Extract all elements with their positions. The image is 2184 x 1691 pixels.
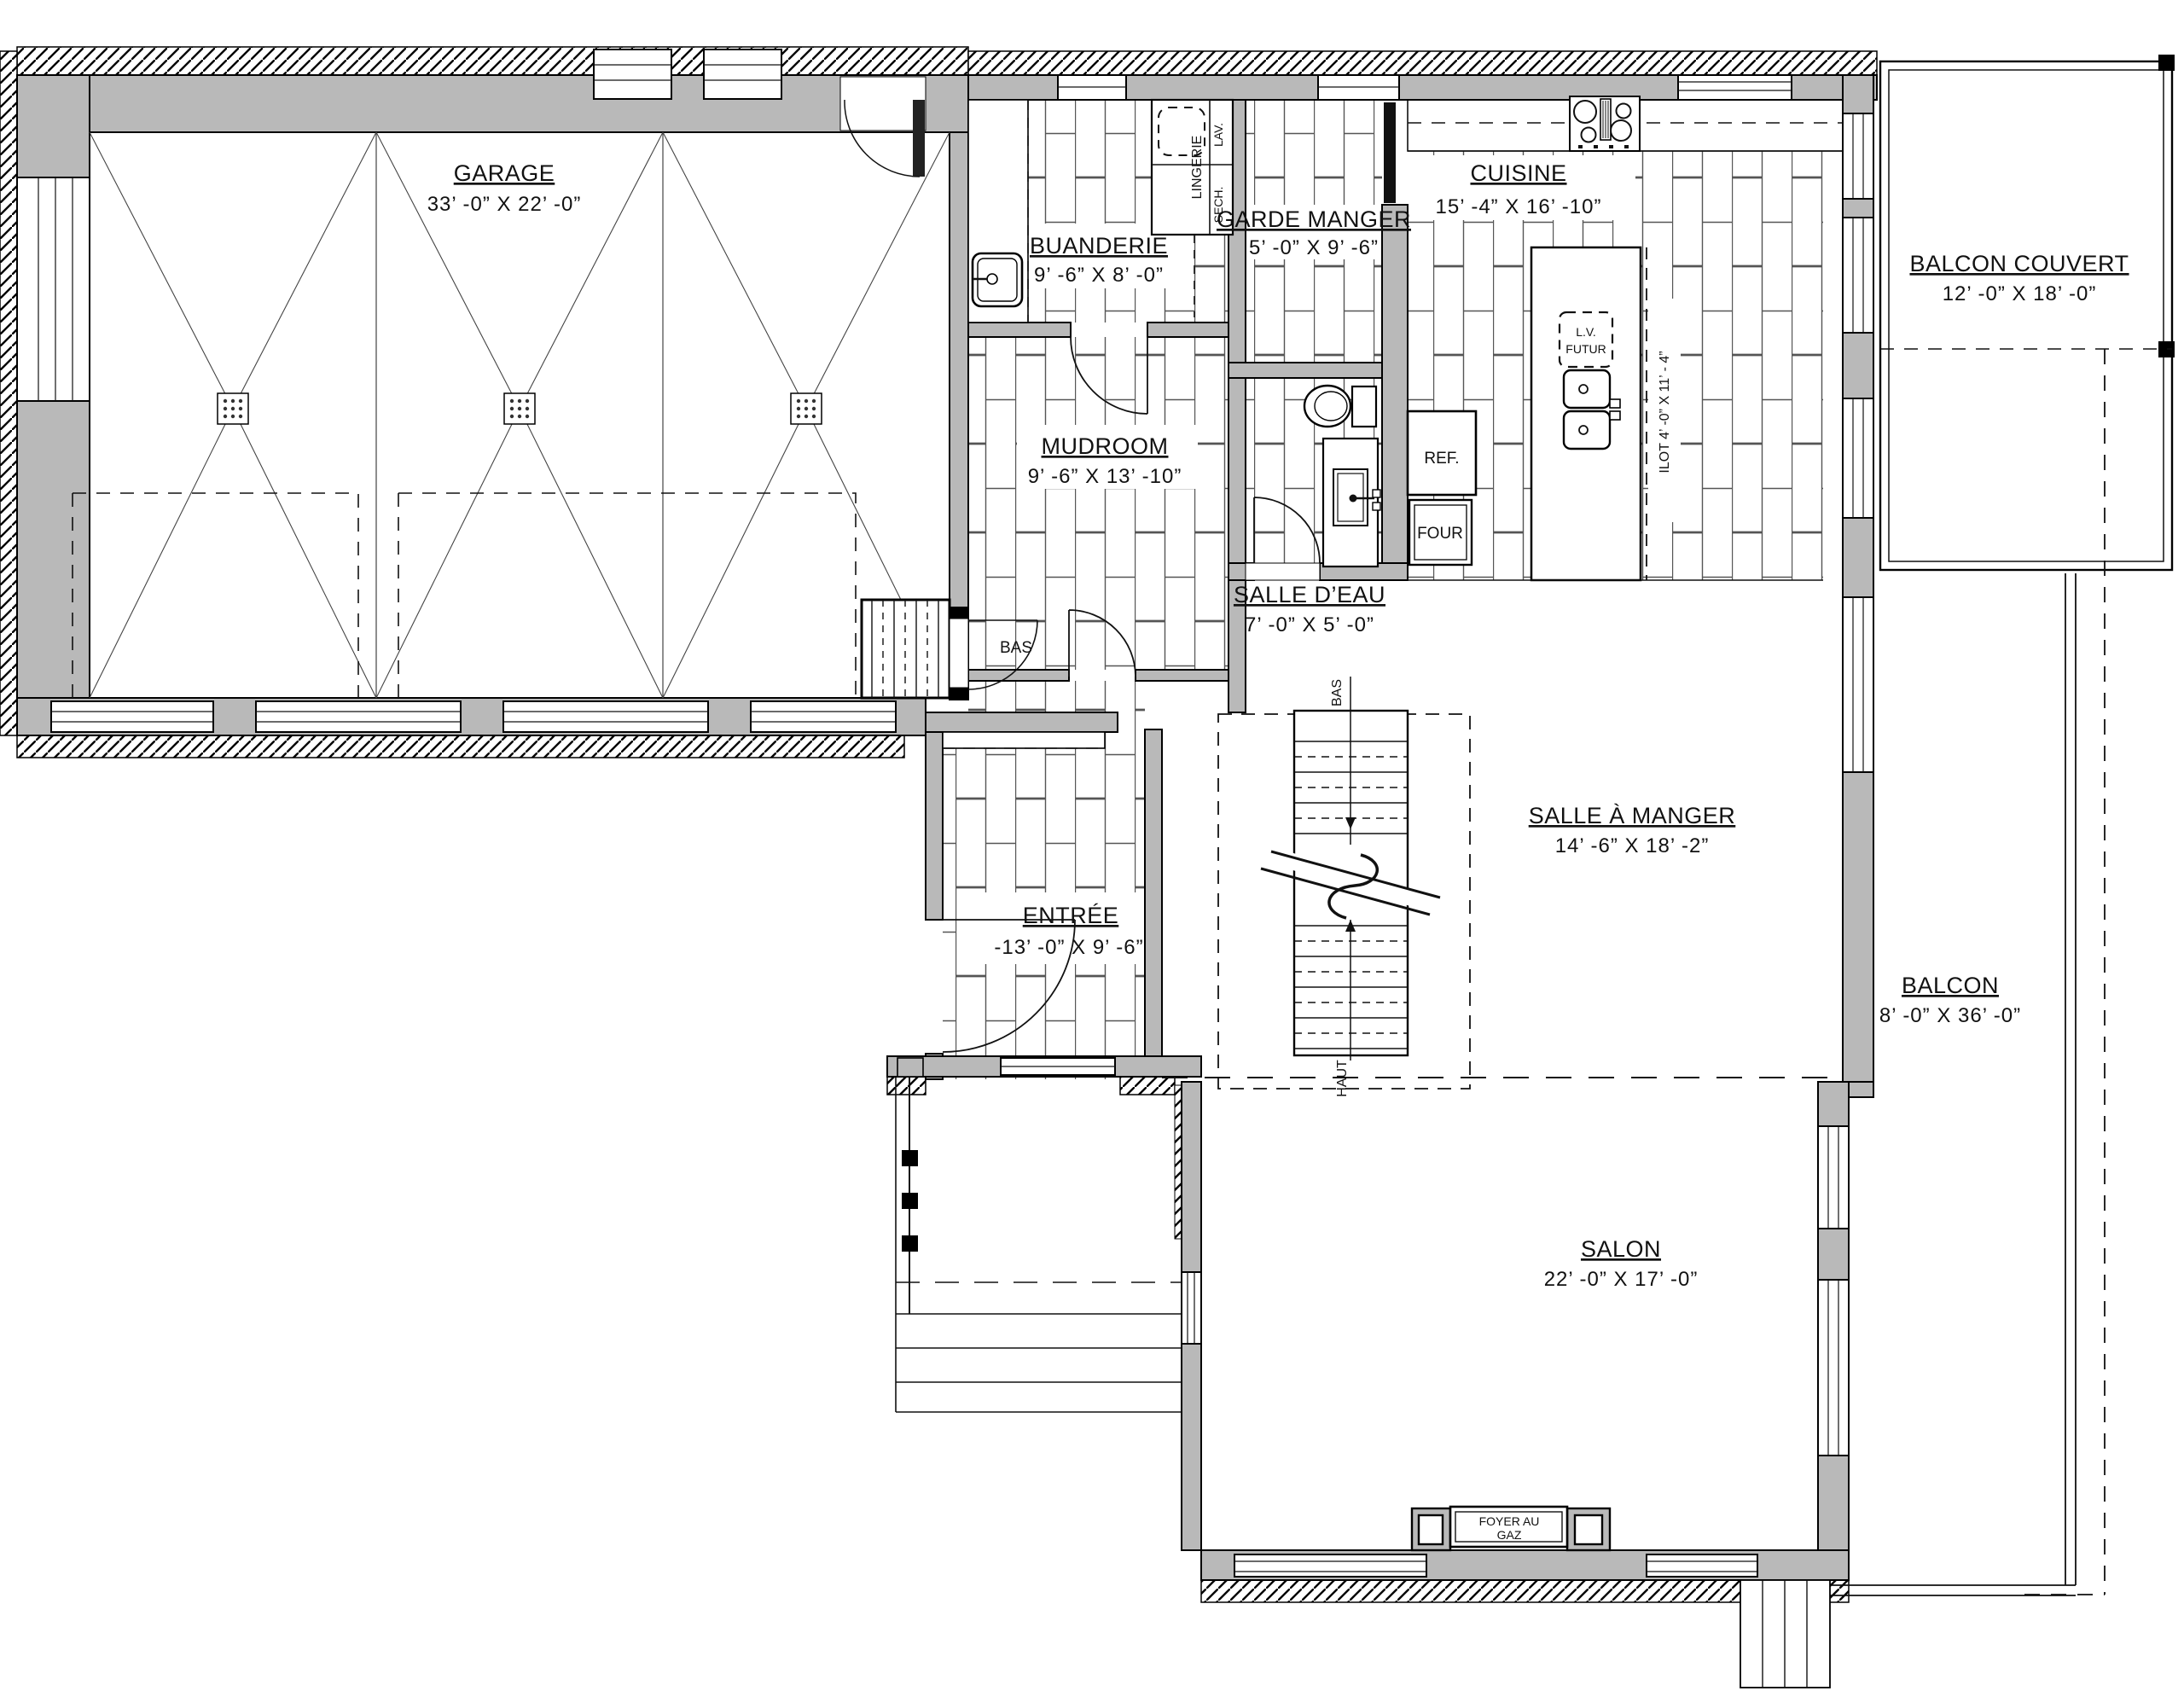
room-label-balcon-couvert: BALCON COUVERT — [1909, 251, 2129, 276]
room-label-garage: GARAGE — [454, 160, 555, 186]
label-foyer-line2: GAZ — [1497, 1528, 1522, 1542]
balcon-steps — [1740, 1580, 1830, 1688]
buanderie-window — [1058, 75, 1126, 100]
room-dims-salle-a-manger: 14’ -6” X 18’ -2” — [1555, 834, 1710, 857]
laundry-sink — [973, 253, 1022, 306]
room-label-buanderie: BUANDERIE — [1030, 233, 1168, 259]
room-label-garde-manger: GARDE MANGER — [1217, 206, 1411, 232]
room-dims-cuisine: 15’ -4” X 16’ -10” — [1436, 195, 1602, 218]
label-bas: BAS — [1330, 679, 1345, 706]
salon-west-window — [1182, 1272, 1201, 1344]
label-lv-futur: FUTUR — [1565, 342, 1606, 356]
garage-west-window — [17, 177, 90, 401]
room-label-balcon: BALCON — [1902, 973, 1999, 998]
label-bas-garage: BAS — [1000, 639, 1032, 657]
room-label-salon: SALON — [1581, 1236, 1661, 1262]
room-label-salle-a-manger: SALLE À MANGER — [1529, 803, 1736, 828]
room-dims-entree: -13’ -0” X 9’ -6” — [994, 936, 1143, 959]
room-dims-mudroom: 9’ -6” X 13’ -10” — [1028, 465, 1182, 488]
cooktop — [1570, 96, 1640, 151]
room-dims-garde-manger: 5’ -0” X 9’ -6” — [1249, 236, 1379, 259]
toilet — [1304, 386, 1376, 427]
label-lingerie: LINGERIE — [1190, 136, 1205, 200]
room-label-cuisine: CUISINE — [1470, 160, 1566, 186]
salon-east-windows — [1818, 1126, 1849, 1456]
kitchen-north-window — [1678, 75, 1792, 100]
room-dims-salle-deau: 7’ -0” X 5’ -0” — [1245, 613, 1374, 636]
garde-manger-window — [1318, 75, 1399, 100]
floor-plan: GARAGE 33’ -0” X 22’ -0” BUANDERIE 9’ -6… — [0, 0, 2184, 1691]
balcon-couvert-structure — [1880, 55, 2175, 570]
room-label-entree: ENTRÉE — [1023, 903, 1119, 928]
label-four: FOUR — [1417, 525, 1463, 543]
entree-closet — [943, 732, 1105, 748]
room-dims-buanderie: 9’ -6” X 8’ -0” — [1034, 264, 1164, 287]
room-label-mudroom: MUDROOM — [1042, 433, 1169, 459]
vanity — [1323, 439, 1380, 567]
room-dims-balcon-couvert: 12’ -0” X 18’ -0” — [1943, 282, 2097, 305]
porch-sidelight — [1001, 1058, 1115, 1075]
room-label-salle-deau: SALLE D’EAU — [1234, 582, 1385, 607]
label-sech: SECH. — [1211, 187, 1225, 224]
label-haut: HAUT — [1335, 1060, 1350, 1097]
pantry-door-leaf — [1384, 102, 1396, 203]
label-lav: LAV. — [1211, 123, 1225, 147]
label-lv: L.V. — [1576, 325, 1596, 339]
label-foyer-line1: FOYER AU — [1479, 1514, 1540, 1528]
room-dims-balcon: 8’ -0” X 36’ -0” — [1879, 1004, 2021, 1027]
label-ilot: ILOT 4’ -0” X 11’ - 4” — [1658, 351, 1672, 473]
room-dims-salon: 22’ -0” X 17’ -0” — [1544, 1268, 1699, 1291]
room-dims-garage: 33’ -0” X 22’ -0” — [427, 193, 582, 216]
label-ref: REF. — [1424, 450, 1459, 468]
